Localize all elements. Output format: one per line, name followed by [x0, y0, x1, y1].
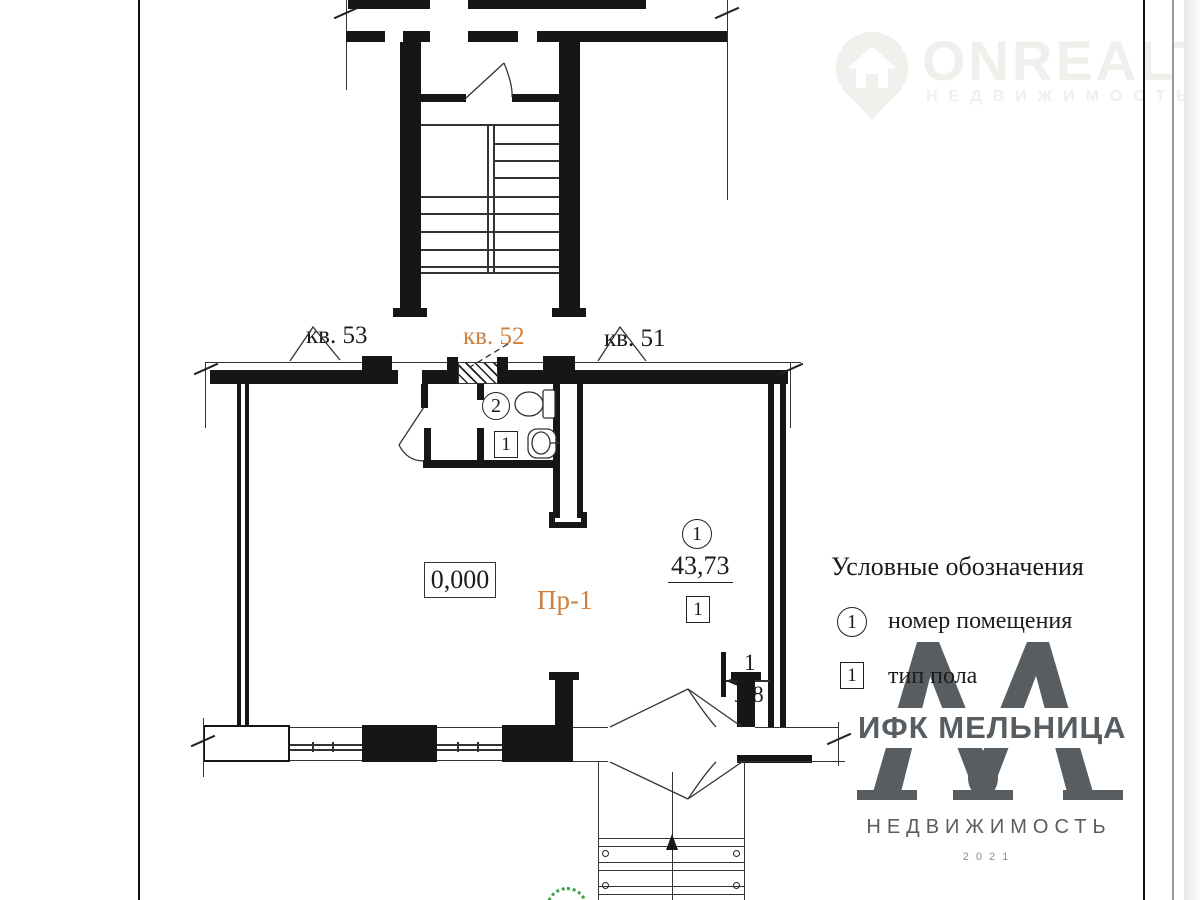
- door-swing-arc: [688, 762, 716, 799]
- stair-tread: [494, 160, 559, 162]
- stairwell-door-jamb: [512, 94, 559, 102]
- main-floor-type: 1: [693, 599, 703, 621]
- room-top-wall: [210, 370, 398, 384]
- room-top-wall: [498, 370, 788, 384]
- wall: [403, 31, 430, 42]
- watermark-brand: ONREALT: [922, 28, 1200, 93]
- legend-item-room-number: номер помещения: [888, 608, 1072, 635]
- wall: [348, 0, 430, 9]
- entrance-jamb-cap: [731, 672, 761, 680]
- wall-foot: [393, 308, 427, 317]
- door-leaf: [610, 689, 688, 727]
- legend-item-floor-type: тип пола: [888, 663, 977, 690]
- onrealt-pin-icon: [824, 26, 920, 122]
- stair-tread: [421, 213, 559, 215]
- stair-landing-line: [421, 124, 559, 126]
- room-right-wall: [768, 384, 774, 727]
- watermark-tagline: НЕДВИЖИМОСТЬ: [926, 88, 1199, 106]
- floor-plan-sheet: ONREALT НЕДВИЖИМОСТЬ кв. 53 кв. 52 кв. 5…: [0, 0, 1200, 900]
- stair-tread: [421, 249, 559, 251]
- stairwell-door-jamb: [421, 94, 466, 102]
- door-jamb-stub: [543, 356, 575, 370]
- stair-tread: [421, 272, 559, 274]
- threshold-line: [573, 727, 608, 728]
- window-sash-line: [290, 744, 362, 746]
- stoop-rail: [598, 762, 599, 900]
- wc-partition: [477, 384, 484, 400]
- door-swing-arc: [399, 445, 424, 461]
- door-swing-arc: [504, 63, 512, 97]
- elevation-value: 0,000: [431, 565, 490, 595]
- toilet-icon: [515, 390, 555, 418]
- wc-wall: [421, 384, 428, 408]
- stoop-tread: [599, 894, 744, 895]
- sheet-border-left: [138, 0, 140, 900]
- wall: [537, 31, 727, 42]
- project-label: Пр-1: [537, 585, 593, 616]
- apartment-label-52: кв. 52: [463, 323, 524, 351]
- window: [437, 760, 502, 761]
- sheet-border-right: [1143, 0, 1145, 900]
- door-swing-arc: [688, 689, 716, 727]
- window-sash-line: [437, 744, 502, 746]
- stoop-tread: [599, 870, 744, 871]
- floor-type-badge-main: 1: [686, 596, 710, 623]
- extension-line: [205, 362, 206, 428]
- room-left-wall: [237, 384, 241, 725]
- wc-right-wall: [577, 384, 583, 518]
- window: [437, 727, 502, 728]
- room-area-value: 43,73: [668, 551, 733, 583]
- company-year: 2021: [858, 851, 1120, 863]
- apartment-label-53: кв. 53: [306, 322, 367, 350]
- extension-line: [203, 718, 204, 777]
- stair-tread: [421, 196, 559, 198]
- stair-tread: [421, 231, 559, 233]
- threshold-line: [573, 761, 608, 762]
- railing-post: [602, 882, 609, 889]
- elevation-box: 0,000: [424, 562, 496, 598]
- window-mullion: [477, 742, 479, 752]
- wall: [346, 31, 385, 42]
- entrance-jamb: [737, 680, 755, 727]
- main-room-number: 1: [692, 523, 702, 546]
- entrance-jamb: [555, 680, 573, 727]
- legend-circle-value: 1: [847, 611, 857, 634]
- room-left-wall: [245, 384, 249, 725]
- window: [290, 760, 362, 761]
- door-jamb-stub: [447, 357, 458, 370]
- room-right-wall: [780, 384, 786, 727]
- stair-divider: [487, 124, 489, 273]
- stair-tread: [494, 143, 559, 145]
- legend-circle-symbol: 1: [837, 607, 867, 637]
- door-leaf: [688, 689, 742, 727]
- railing-post: [602, 850, 609, 857]
- cut-wall-line-right: [727, 0, 728, 200]
- door-jamb-stub: [497, 357, 508, 370]
- wc-room-number: 2: [491, 395, 501, 418]
- break-mark: [827, 733, 852, 745]
- wall: [468, 31, 518, 42]
- stoop-tread: [599, 862, 744, 863]
- wc-right-wall: [553, 384, 560, 518]
- railing-post: [733, 850, 740, 857]
- break-mark: [779, 363, 804, 375]
- room-number-badge-main: 1: [682, 519, 712, 549]
- apartment-label-51: кв. 51: [604, 325, 665, 353]
- door-jamb-stub: [362, 356, 392, 370]
- window-mullion: [312, 742, 314, 752]
- wc-floor-type: 1: [501, 434, 511, 456]
- window-mullion: [332, 742, 334, 752]
- extension-line: [790, 362, 791, 428]
- wall-pier: [203, 725, 290, 762]
- door-leaf: [610, 762, 688, 799]
- wall: [468, 0, 646, 9]
- stairwell-wall-left: [400, 42, 421, 316]
- entrance-jamb-cap: [549, 672, 579, 680]
- window-sash-line: [437, 749, 502, 751]
- wc-bottom-wall: [423, 460, 557, 468]
- room-top-wall: [422, 370, 458, 384]
- company-tagline: НЕДВИЖИМОСТЬ: [858, 816, 1120, 839]
- door-leaf: [688, 762, 742, 799]
- wall-foot: [552, 308, 586, 317]
- stamp-circle: [546, 887, 588, 900]
- stair-tread: [494, 177, 559, 179]
- legend-title: Условные обозначения: [831, 552, 1084, 582]
- stoop-tread: [599, 886, 744, 887]
- window-sash-line: [290, 749, 362, 751]
- door-leaf: [399, 407, 424, 445]
- window-mullion: [457, 742, 459, 752]
- stair-divider: [493, 124, 495, 273]
- door-leaf: [466, 63, 504, 98]
- extension-line: [838, 722, 839, 766]
- page-edge-shadow: [1184, 0, 1200, 900]
- stairwell-wall-right: [559, 42, 580, 316]
- wall-face-line: [755, 727, 838, 728]
- wall-pier: [502, 725, 573, 762]
- sheet-border-right-outer: [1172, 0, 1174, 900]
- wall-face-line: [737, 761, 845, 762]
- window: [290, 727, 362, 728]
- wall-foot: [549, 522, 587, 528]
- floor-type-badge-wc: 1: [494, 431, 518, 458]
- room-number-badge-wc: 2: [482, 392, 510, 420]
- hatched-wall-opening: [458, 362, 498, 384]
- stair-direction-arrow-icon: [666, 834, 678, 850]
- railing-post: [733, 882, 740, 889]
- wall-pier: [362, 725, 437, 762]
- company-name: ИФК МЕЛЬНИЦА: [858, 708, 1120, 748]
- stoop-rail: [744, 762, 745, 900]
- stair-tread: [421, 266, 559, 268]
